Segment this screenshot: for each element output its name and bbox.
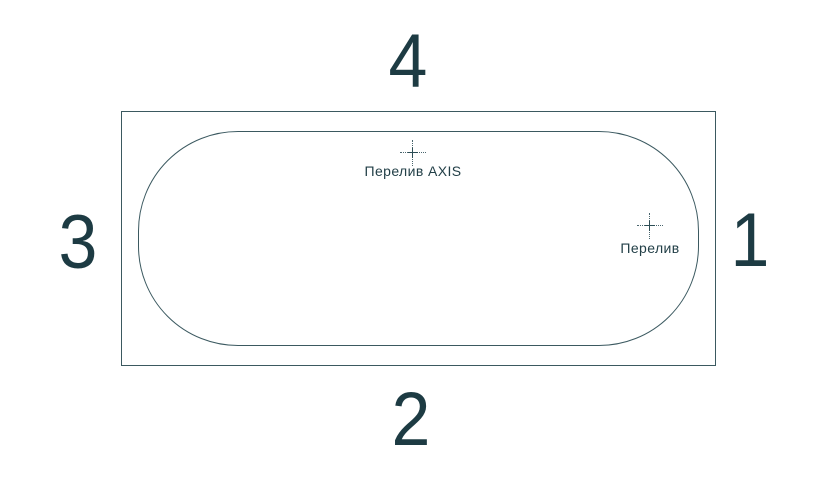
side-number-4: 4 [376, 26, 440, 98]
side-number-3: 3 [46, 207, 110, 279]
crosshair-center [645, 225, 655, 226]
crosshair-center [412, 148, 413, 158]
overflow-axis-label: Перелив AXIS [333, 163, 493, 179]
overflow-label: Перелив [570, 240, 730, 256]
crosshair-center [408, 152, 418, 153]
diagram-canvas: 4 2 3 1 Перелив AXIS Перелив [0, 0, 828, 480]
crosshair-center [649, 221, 650, 231]
crosshair-icon [637, 213, 663, 239]
side-number-2: 2 [379, 384, 443, 456]
